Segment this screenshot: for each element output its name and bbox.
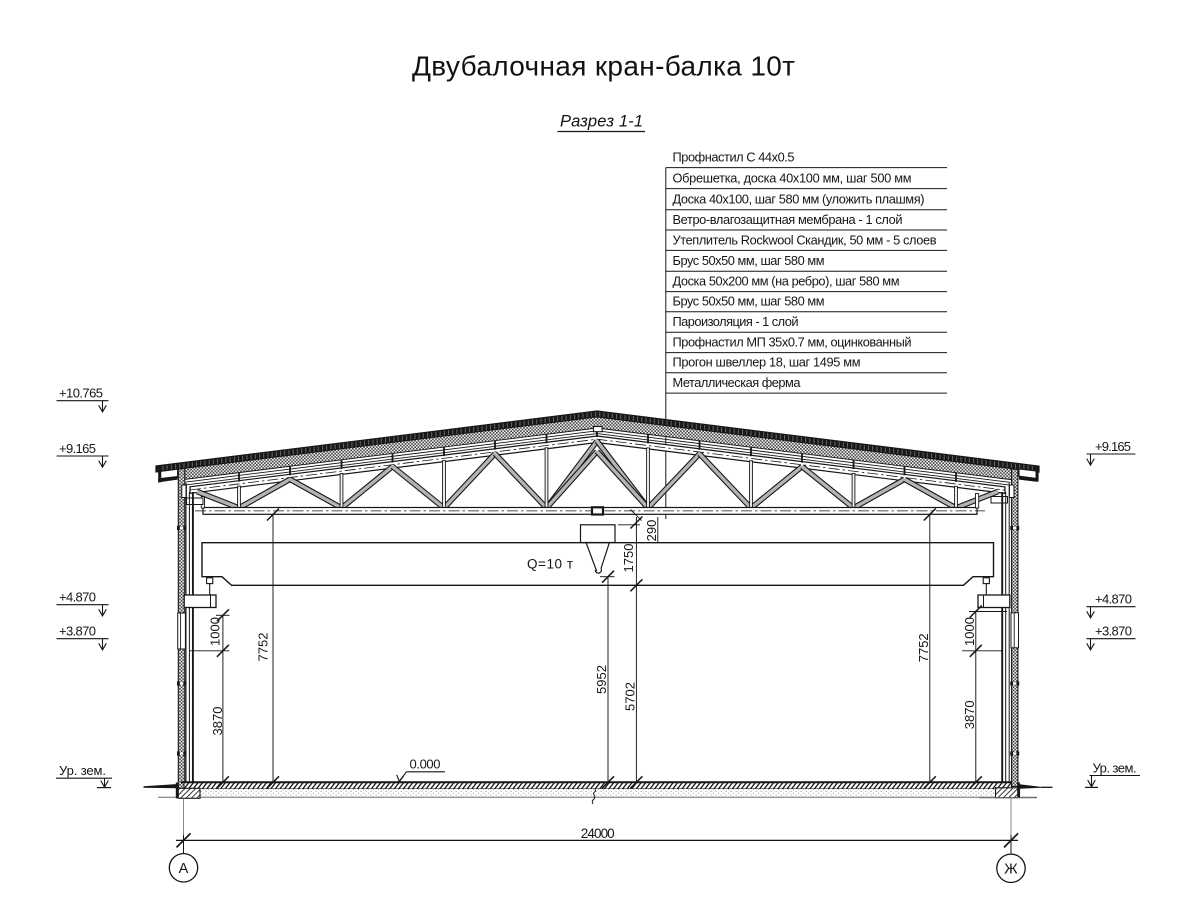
- svg-text:3870: 3870: [210, 707, 225, 736]
- svg-text:3870: 3870: [962, 700, 977, 729]
- svg-text:7752: 7752: [916, 633, 931, 662]
- svg-text:Брус 50х50 мм, шаг 580 мм: Брус 50х50 мм, шаг 580 мм: [673, 294, 825, 309]
- svg-text:Металлическая ферма: Металлическая ферма: [673, 375, 802, 390]
- svg-text:Ур. зем.: Ур. зем.: [59, 763, 106, 778]
- svg-text:5702: 5702: [622, 682, 637, 711]
- svg-text:Ветро-влагозащитная мембрана -: Ветро-влагозащитная мембрана - 1 слой: [673, 212, 903, 227]
- svg-text:Пароизоляция - 1 слой: Пароизоляция - 1 слой: [673, 314, 799, 329]
- svg-text:+3.870: +3.870: [1095, 624, 1132, 639]
- svg-text:Разрез 1-1: Разрез 1-1: [560, 113, 643, 131]
- svg-text:Профнастил МП 35х0.7 мм, оцинк: Профнастил МП 35х0.7 мм, оцинкованный: [673, 335, 912, 350]
- svg-text:Брус 50х50 мм, шаг 580 мм: Брус 50х50 мм, шаг 580 мм: [673, 253, 825, 268]
- svg-text:24000: 24000: [581, 826, 615, 841]
- svg-text:1750: 1750: [621, 544, 636, 573]
- svg-text:Прогон швеллер 18, шаг 1495 мм: Прогон швеллер 18, шаг 1495 мм: [673, 355, 861, 370]
- svg-text:Доска 50х200 мм (на ребро), ша: Доска 50х200 мм (на ребро), шаг 580 мм: [673, 274, 900, 289]
- svg-text:Утеплитель Rockwool Скандик, 5: Утеплитель Rockwool Скандик, 50 мм - 5 с…: [673, 232, 937, 247]
- svg-text:+9.165: +9.165: [59, 441, 96, 456]
- svg-text:+4.870: +4.870: [59, 590, 96, 605]
- svg-text:Двубалочная кран-балка 10т: Двубалочная кран-балка 10т: [412, 51, 795, 82]
- svg-text:0.000: 0.000: [410, 757, 441, 772]
- svg-text:290: 290: [644, 520, 659, 542]
- svg-text:7752: 7752: [256, 633, 271, 662]
- svg-text:Ур. зем.: Ур. зем.: [1093, 760, 1137, 775]
- svg-text:+3.870: +3.870: [59, 624, 96, 639]
- svg-text:А: А: [179, 861, 189, 877]
- svg-text:1000: 1000: [208, 617, 223, 646]
- svg-text:+4.870: +4.870: [1095, 592, 1132, 607]
- svg-text:Доска 40х100, шаг 580 мм (улож: Доска 40х100, шаг 580 мм (уложить плашмя…: [673, 192, 925, 207]
- svg-text:Обрешетка, доска 40х100 мм, ша: Обрешетка, доска 40х100 мм, шаг 500 мм: [673, 171, 912, 186]
- svg-text:Q=10 т: Q=10 т: [527, 557, 573, 572]
- svg-text:5952: 5952: [594, 665, 609, 694]
- svg-text:+10.765: +10.765: [59, 386, 103, 401]
- svg-text:Ж: Ж: [1004, 862, 1018, 878]
- svg-text:+9.165: +9.165: [1095, 439, 1131, 454]
- svg-text:Профнастил С 44х0.5: Профнастил С 44х0.5: [673, 150, 795, 165]
- svg-text:1000: 1000: [962, 617, 977, 646]
